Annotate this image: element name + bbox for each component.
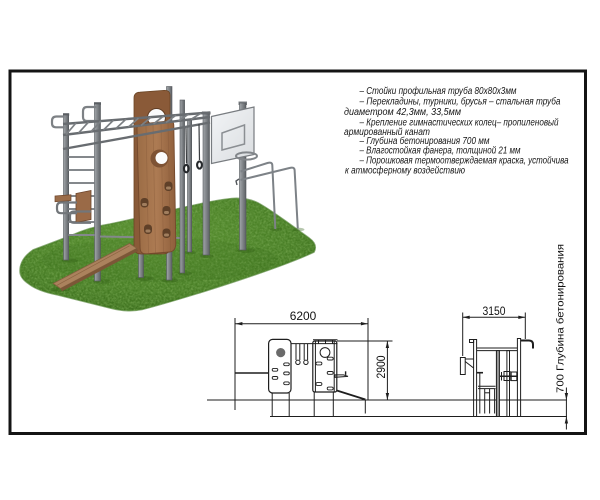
svg-text:диаметром 42,3мм, 33,5мм: диаметром 42,3мм, 33,5мм: [344, 107, 461, 118]
svg-text:к атмосферному воздействию: к атмосферному воздействию: [345, 165, 465, 177]
svg-text:700 Глубина бетонирования: 700 Глубина бетонирования: [555, 244, 567, 393]
svg-text:– Перекладины, турники, брусья: – Перекладины, турники, брусья – стальна…: [359, 95, 561, 107]
svg-text:6200: 6200: [290, 311, 317, 323]
svg-text:– Стойки профильная труба 80х8: – Стойки профильная труба 80х80х3мм: [359, 85, 517, 97]
svg-text:2900: 2900: [376, 356, 388, 379]
svg-text:3150: 3150: [483, 306, 506, 318]
